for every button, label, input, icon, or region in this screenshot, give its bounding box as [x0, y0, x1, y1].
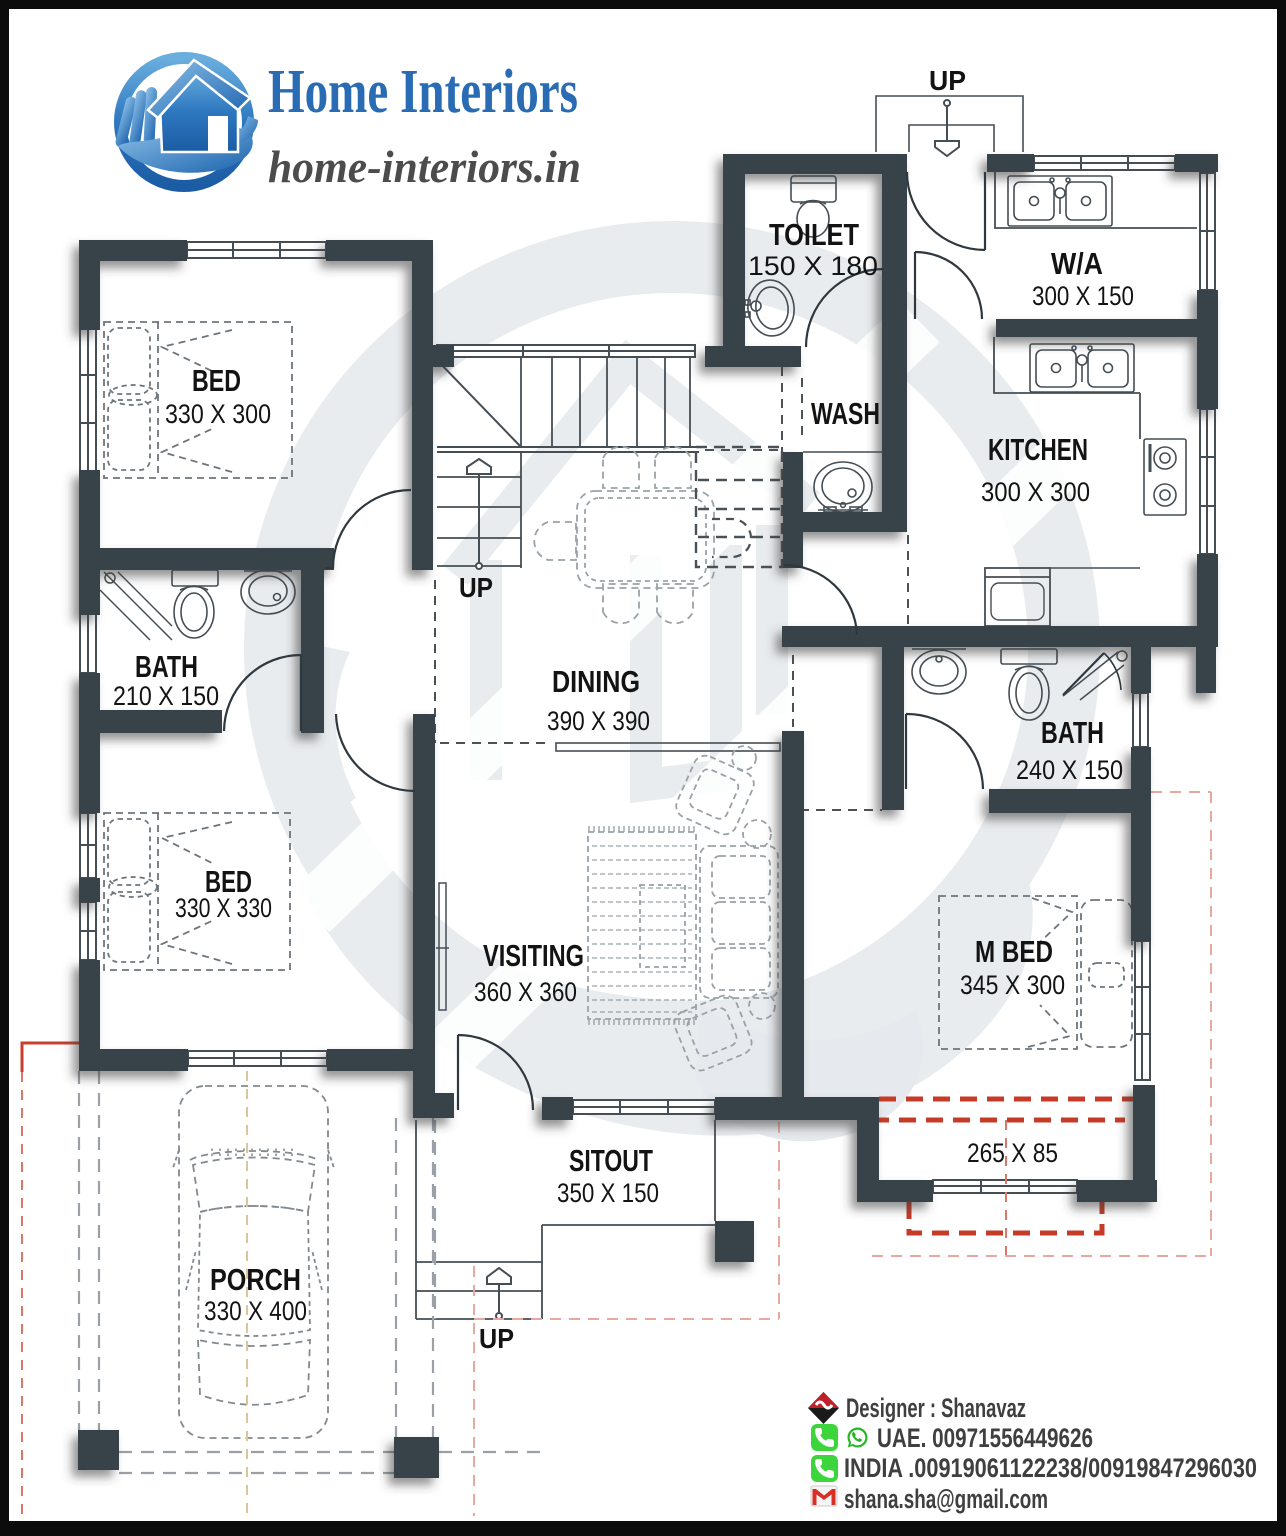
svg-text:SITOUT: SITOUT [569, 1143, 653, 1178]
svg-text:Designer : Shanavaz: Designer : Shanavaz [846, 1393, 1026, 1423]
svg-text:330 X 400: 330 X 400 [204, 1296, 307, 1326]
svg-text:M BED: M BED [975, 934, 1053, 969]
svg-text:300 X 150: 300 X 150 [1032, 281, 1134, 311]
svg-text:150 X 180: 150 X 180 [748, 251, 878, 281]
svg-text:INDIA .00919061122238/00919847: INDIA .00919061122238/00919847296030 [844, 1453, 1257, 1483]
svg-text:UAE. 00971556449626: UAE. 00971556449626 [877, 1423, 1093, 1453]
svg-text:Home Interiors: Home Interiors [268, 58, 578, 126]
svg-text:BATH: BATH [1041, 715, 1104, 750]
svg-text:BED: BED [192, 363, 241, 398]
svg-text:265 X 85: 265 X 85 [967, 1138, 1058, 1168]
svg-text:240 X 150: 240 X 150 [1016, 755, 1123, 785]
svg-text:350 X 150: 350 X 150 [557, 1178, 659, 1208]
svg-text:KITCHEN: KITCHEN [988, 432, 1088, 467]
svg-text:TOILET: TOILET [769, 217, 859, 252]
svg-text:300 X 300: 300 X 300 [981, 477, 1090, 507]
svg-text:330 X 330: 330 X 330 [175, 893, 272, 923]
svg-text:UP: UP [929, 65, 966, 96]
svg-text:345 X 300: 345 X 300 [960, 970, 1065, 1000]
svg-text:UP: UP [459, 572, 493, 603]
svg-text:WASH: WASH [811, 396, 880, 431]
svg-text:390 X 390: 390 X 390 [547, 706, 650, 736]
svg-text:330 X 300: 330 X 300 [165, 399, 271, 429]
svg-text:PORCH: PORCH [210, 1262, 301, 1297]
svg-text:210 X 150: 210 X 150 [113, 681, 219, 711]
svg-text:W/A: W/A [1051, 246, 1103, 281]
svg-text:shana.sha@gmail.com: shana.sha@gmail.com [844, 1484, 1048, 1514]
svg-text:DINING: DINING [552, 664, 640, 699]
svg-text:360 X 360: 360 X 360 [474, 977, 577, 1007]
svg-text:BATH: BATH [135, 649, 198, 684]
svg-text:home-interiors.in: home-interiors.in [268, 141, 581, 192]
svg-text:VISITING: VISITING [483, 938, 584, 973]
svg-text:UP: UP [479, 1323, 514, 1354]
